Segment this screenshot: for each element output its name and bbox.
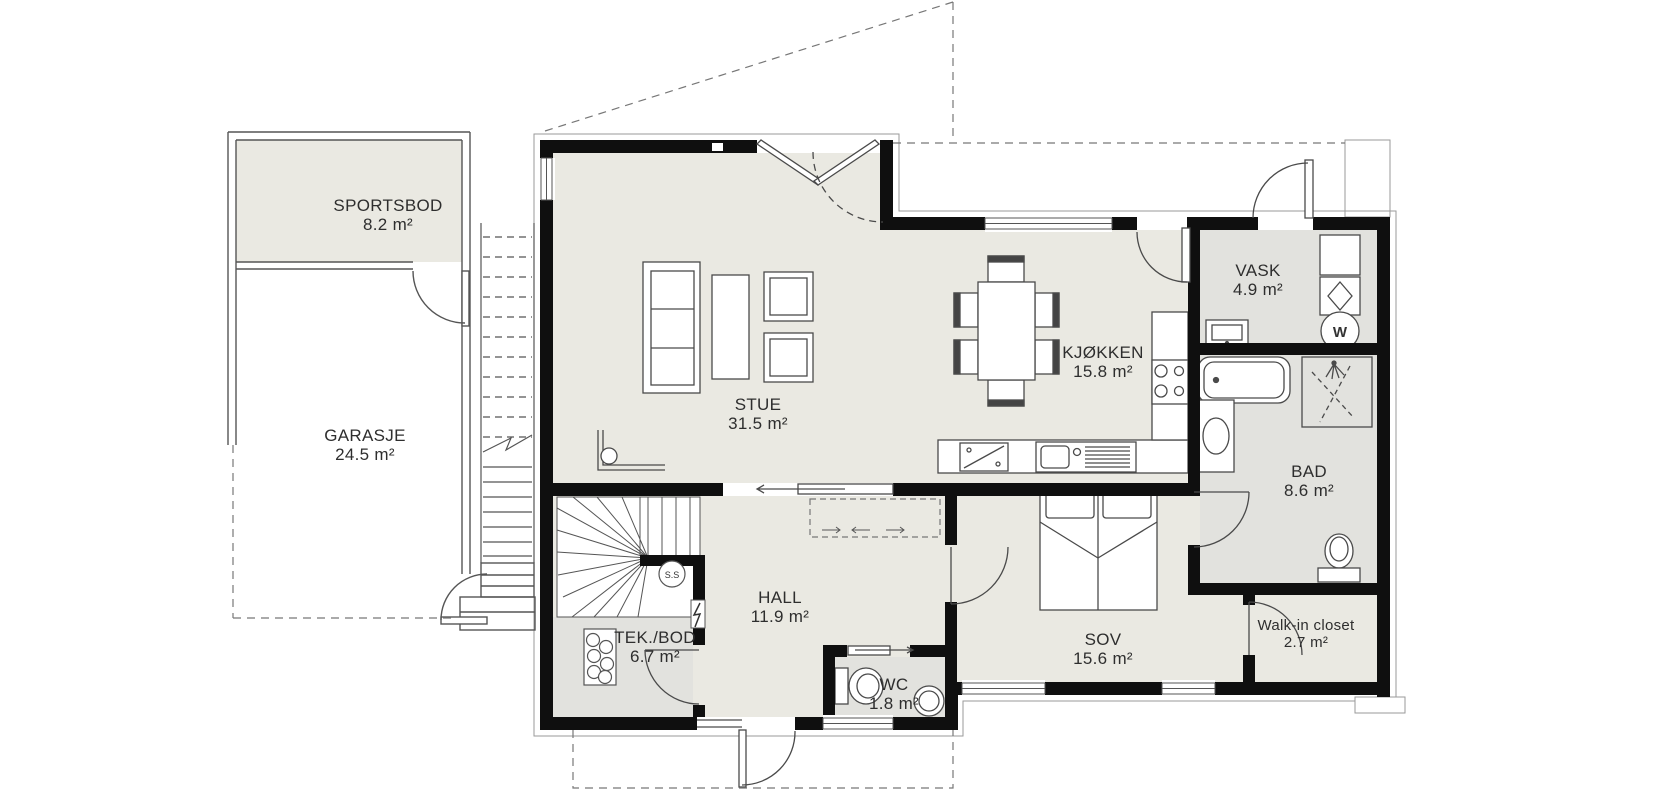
bathtub-drain	[1214, 378, 1219, 383]
wall	[945, 602, 957, 717]
wall	[823, 645, 847, 657]
room-name: KJØKKEN	[1062, 343, 1143, 362]
kitchen-entry-door-leaf	[1182, 228, 1190, 282]
sofa-seat	[651, 271, 694, 385]
dining-table	[978, 282, 1035, 380]
room-label-tekbod: TEK./BOD 6.7 m²	[614, 628, 696, 666]
garage-landing-lower	[460, 597, 535, 630]
entrance-sidelite	[697, 720, 742, 727]
garage-landing-lines	[481, 575, 534, 586]
wall	[1188, 343, 1377, 355]
wall	[1243, 655, 1255, 682]
wall	[795, 717, 823, 730]
exterior-stair	[481, 223, 534, 563]
room-area: 8.6 m²	[1284, 481, 1334, 500]
wall	[1187, 217, 1258, 230]
stair-treads-upper-dashed	[483, 237, 532, 437]
room-label-stue: STUE 31.5 m²	[728, 395, 788, 433]
room-name: SPORTSBOD	[333, 196, 442, 215]
stove-flue	[601, 448, 617, 464]
dining-chair-top-back	[988, 256, 1024, 262]
room-area: 11.9 m²	[751, 607, 809, 626]
room-label-hall: HALL 11.9 m²	[751, 588, 809, 626]
room-name: VASK	[1235, 261, 1280, 280]
wall	[893, 483, 1200, 496]
room-name: Walk-in closet	[1258, 617, 1355, 634]
armchair-1-seat	[770, 278, 807, 315]
heater-pipe-4	[601, 658, 614, 671]
vask-exterior-door-arc	[1253, 163, 1308, 218]
wall	[1188, 583, 1377, 595]
floorplan-canvas: S.S W SPORTSBOD 8.2 m² GARASJE 24.5 m² S…	[0, 0, 1670, 800]
terrace-outline	[573, 730, 953, 788]
tekbod-fixtures	[584, 629, 616, 685]
dining-chair-bottom-back	[988, 400, 1024, 406]
wall	[540, 140, 757, 153]
heater-pipe-6	[599, 671, 612, 684]
garage-sportsbod-door-leaf	[462, 271, 469, 326]
bad-toilet-bowl-inner	[1330, 537, 1348, 561]
wc-toilet-tank	[835, 668, 848, 704]
shower-head-dot	[1332, 361, 1336, 365]
wall-vent	[712, 143, 723, 151]
stair-treads-lower	[483, 467, 532, 556]
wall	[540, 717, 697, 730]
room-area: 24.5 m²	[335, 445, 395, 464]
room-area: 31.5 m²	[728, 414, 788, 433]
heater-pipe-3	[588, 650, 601, 663]
entrance-door-leaf	[739, 730, 746, 787]
room-label-sov: SOV 15.6 m²	[1073, 630, 1133, 668]
wall	[893, 217, 985, 230]
garage-landing-upper	[481, 563, 534, 597]
room-area: 4.9 m²	[1233, 280, 1283, 299]
room-name: GARASJE	[324, 426, 405, 445]
room-area: 15.8 m²	[1073, 362, 1133, 381]
room-area: 2.7 m²	[1284, 634, 1328, 651]
room-area: 6.7 m²	[630, 647, 680, 666]
wc-sink-inner	[919, 691, 939, 711]
entrance-door-arc	[742, 731, 795, 785]
heater-pipe-2	[600, 641, 613, 654]
wall	[1377, 230, 1390, 697]
washer-label: W	[1333, 324, 1348, 341]
room-label-wc: WC 1.8 m²	[869, 675, 919, 713]
room-label-vask: VASK 4.9 m²	[1233, 261, 1283, 299]
dining-chair-right1-back	[1053, 293, 1059, 327]
kitchen-faucet	[1074, 449, 1081, 456]
room-name: WC	[880, 675, 909, 694]
stair-ss-label: S.S	[665, 570, 680, 580]
room-name: TEK./BOD	[614, 628, 696, 647]
bad-sink	[1203, 418, 1229, 454]
driveway-outline	[233, 445, 455, 618]
corner-notch	[1355, 697, 1405, 713]
room-name: STUE	[735, 395, 782, 414]
wall	[893, 717, 957, 730]
wall	[910, 645, 945, 657]
dishwasher-dot2	[996, 462, 1000, 466]
wall	[1045, 682, 1162, 695]
wall	[540, 200, 553, 730]
vask-counter	[1320, 235, 1360, 275]
room-name: HALL	[758, 588, 802, 607]
room-name: BAD	[1291, 462, 1327, 481]
vask-basin-inner	[1212, 325, 1242, 340]
room-area: 15.6 m²	[1073, 649, 1133, 668]
wall	[1313, 217, 1390, 230]
room-area: 1.8 m²	[869, 694, 919, 713]
dishwasher-dot1	[967, 448, 971, 452]
floorplan-graphics: S.S W	[0, 0, 1670, 800]
coffee-table	[712, 275, 749, 379]
wall	[945, 496, 957, 545]
porch-post	[1345, 140, 1390, 217]
bad-toilet-tank	[1318, 568, 1360, 582]
dining-chair-left2-back	[954, 340, 960, 374]
kitchen-sink-basin	[1041, 446, 1069, 468]
room-label-walkin: Walk-in closet 2.7 m²	[1258, 617, 1355, 651]
wall	[1215, 682, 1390, 695]
room-area: 8.2 m²	[363, 215, 413, 234]
furniture-bedroom	[1040, 486, 1157, 610]
wall	[880, 140, 893, 230]
room-label-sportsbod: SPORTSBOD 8.2 m²	[333, 196, 442, 234]
room-label-kjokken: KJØKKEN 15.8 m²	[1062, 343, 1143, 381]
roof-outline-diagonal	[545, 2, 953, 131]
heater-pipe-1	[587, 634, 600, 647]
vask-exterior-door-leaf	[1305, 160, 1313, 218]
room-name: SOV	[1085, 630, 1122, 649]
room-label-garasje: GARASJE 24.5 m²	[324, 426, 405, 464]
wall	[1188, 545, 1200, 583]
garage-sportsbod-door-arc	[413, 271, 465, 323]
dining-chair-right2-back	[1053, 340, 1059, 374]
armchair-2-seat	[770, 339, 807, 376]
wall	[540, 140, 553, 158]
wall	[693, 705, 705, 717]
wall	[553, 483, 723, 496]
room-label-bad: BAD 8.6 m²	[1284, 462, 1334, 500]
dining-chair-left1-back	[954, 293, 960, 327]
wall	[1112, 217, 1137, 230]
